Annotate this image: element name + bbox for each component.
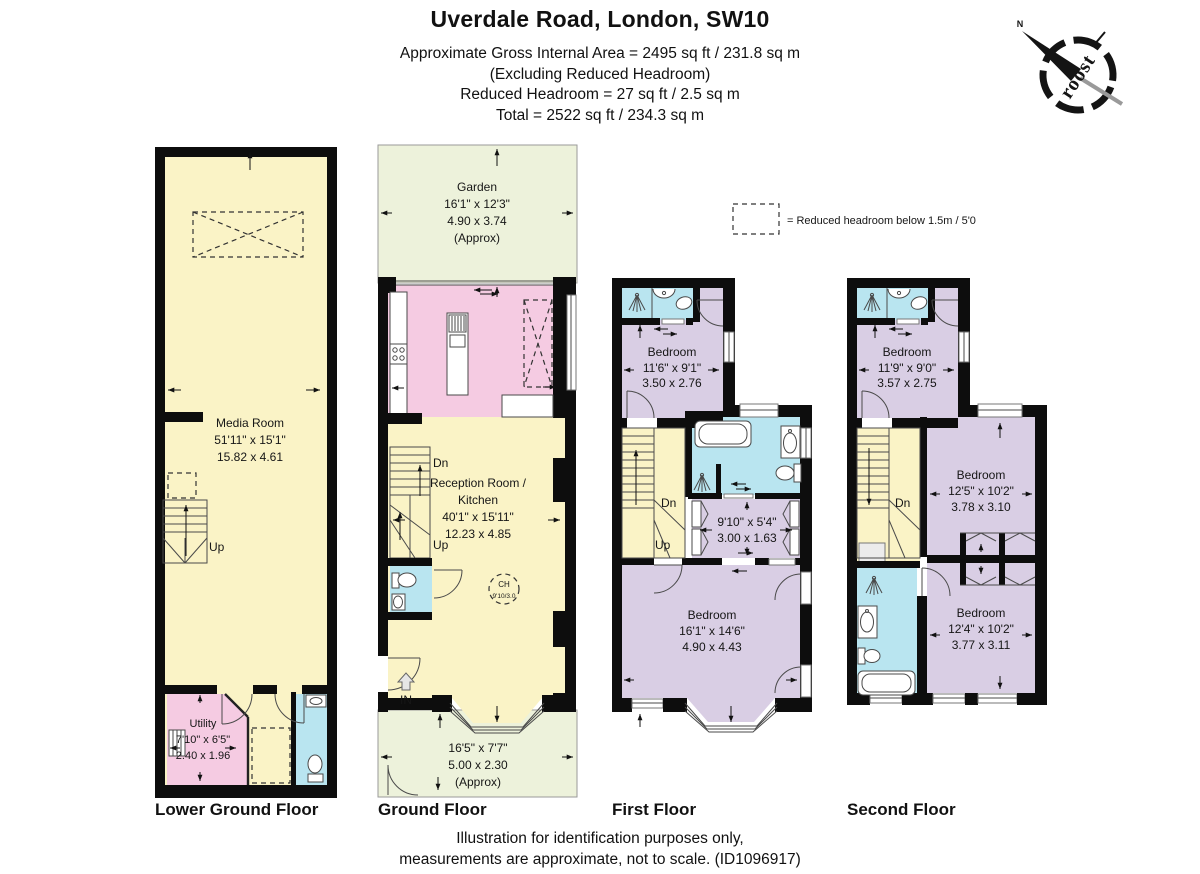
- ground-floor-plan: CH 9'10/3.0 IN: [378, 145, 577, 797]
- utility-imperial: 7'10" x 6'5": [176, 734, 230, 746]
- garden-name: Garden: [457, 180, 497, 194]
- f2-bedroom3-metric: 3.77 x 3.11: [952, 638, 1011, 652]
- kitchen-island: [447, 313, 468, 395]
- media-room-imperial: 51'11" x 15'1": [214, 433, 286, 447]
- first-floor-label: First Floor: [612, 800, 696, 820]
- floorplan-drawing: N roost = Reduced headroom below 1.5m / …: [0, 0, 1200, 874]
- media-room-metric: 15.82 x 4.61: [217, 450, 283, 464]
- sink-icon: [858, 606, 877, 638]
- f1-bedroom2-metric: 4.90 x 4.43: [682, 640, 742, 654]
- garden-imperial: 16'1" x 12'3": [444, 197, 510, 211]
- kitchen-counter: [390, 292, 407, 415]
- sink-icon: [306, 695, 326, 707]
- floorplan-page: N roost = Reduced headroom below 1.5m / …: [0, 0, 1200, 874]
- f1-dressing-metric: 3.00 x 1.63: [717, 531, 777, 545]
- lg-up-label: Up: [209, 540, 225, 554]
- f2-dn-label: Dn: [895, 496, 910, 510]
- area-summary-line3: Reduced Headroom = 27 sq ft / 2.5 sq m: [0, 85, 1200, 106]
- area-summary-line1: Approximate Gross Internal Area = 2495 s…: [0, 44, 1200, 65]
- reception-imperial: 40'1" x 15'11": [442, 510, 514, 524]
- reception-name1: Reception Room /: [430, 476, 527, 490]
- reduced-headroom-swatch: [733, 204, 779, 234]
- f2-bedroom2-name: Bedroom: [957, 468, 1006, 482]
- utility-name: Utility: [190, 718, 217, 730]
- legend-label: = Reduced headroom below 1.5m / 5'0: [787, 215, 976, 227]
- garden-metric: 4.90 x 3.74: [447, 214, 507, 228]
- entrance-in-label: IN: [400, 693, 412, 707]
- first-floor-plan: Bedroom 11'6" x 9'1" 3.50 x 2.76 9'10" x…: [612, 278, 812, 732]
- f1-up-label: Up: [655, 538, 671, 552]
- kitchen-worktop: [502, 395, 553, 417]
- f1-bedroom2-name: Bedroom: [688, 608, 737, 622]
- front-garden-approx: (Approx): [455, 775, 501, 789]
- f1-dressing-imperial: 9'10" x 5'4": [717, 515, 776, 529]
- f1-bedroom1-name: Bedroom: [648, 345, 697, 359]
- f2-bedroom1-imperial: 11'9" x 9'0": [878, 361, 936, 375]
- reception-name2: Kitchen: [458, 493, 498, 507]
- toilet-icon: [308, 755, 323, 782]
- garden-approx: (Approx): [454, 231, 500, 245]
- f1-bedroom1-metric: 3.50 x 2.76: [642, 376, 702, 390]
- g-dn-label: Dn: [433, 456, 448, 470]
- disclaimer: Illustration for identification purposes…: [0, 828, 1200, 870]
- f1-dn-label: Dn: [661, 496, 676, 510]
- second-floor-label: Second Floor: [847, 800, 956, 820]
- sink-icon: [392, 594, 405, 610]
- bathtub-icon: [858, 671, 915, 695]
- f2-bedroom1-metric: 3.57 x 2.75: [877, 376, 937, 390]
- toilet-icon: [392, 573, 416, 588]
- sink-icon: [781, 426, 800, 458]
- lower-ground-floor-label: Lower Ground Floor: [155, 800, 318, 820]
- g-up-label: Up: [433, 538, 449, 552]
- f1-bedroom2-imperial: 16'1" x 14'6": [679, 624, 745, 638]
- ch-label: CH: [498, 580, 510, 589]
- second-floor-plan: Bedroom 11'9" x 9'0" 3.57 x 2.75 Bedroom…: [847, 278, 1047, 705]
- front-garden-metric: 5.00 x 2.30: [448, 758, 508, 772]
- reduced-headroom-legend: = Reduced headroom below 1.5m / 5'0: [733, 204, 976, 234]
- ch-value: 9'10/3.0: [493, 593, 516, 600]
- page-title: Uverdale Road, London, SW10: [0, 6, 1200, 33]
- area-summary: Approximate Gross Internal Area = 2495 s…: [0, 44, 1200, 126]
- reception-metric: 12.23 x 4.85: [445, 527, 511, 541]
- utility-metric: 2.40 x 1.96: [176, 750, 230, 762]
- f1-bedroom1-imperial: 11'6" x 9'1": [643, 361, 701, 375]
- area-summary-line4: Total = 2522 sq ft / 234.3 sq m: [0, 106, 1200, 127]
- media-room-name: Media Room: [216, 416, 284, 430]
- toilet-icon: [858, 648, 880, 664]
- lower-ground-floor-plan: Media Room 51'11" x 15'1" 15.82 x 4.61 U…: [155, 147, 337, 798]
- bathtub-icon: [695, 421, 751, 447]
- f2-bedroom2-imperial: 12'5" x 10'2": [948, 484, 1014, 498]
- ground-floor-label: Ground Floor: [378, 800, 487, 820]
- f2-bedroom1-name: Bedroom: [883, 345, 932, 359]
- disclaimer-line2: measurements are approximate, not to sca…: [0, 849, 1200, 870]
- front-garden-imperial: 16'5" x 7'7": [448, 741, 507, 755]
- f2-bedroom3-name: Bedroom: [957, 606, 1006, 620]
- disclaimer-line1: Illustration for identification purposes…: [0, 828, 1200, 849]
- area-summary-line2: (Excluding Reduced Headroom): [0, 65, 1200, 86]
- f2-bedroom3-imperial: 12'4" x 10'2": [948, 622, 1014, 636]
- f2-bedroom2-metric: 3.78 x 3.10: [951, 500, 1011, 514]
